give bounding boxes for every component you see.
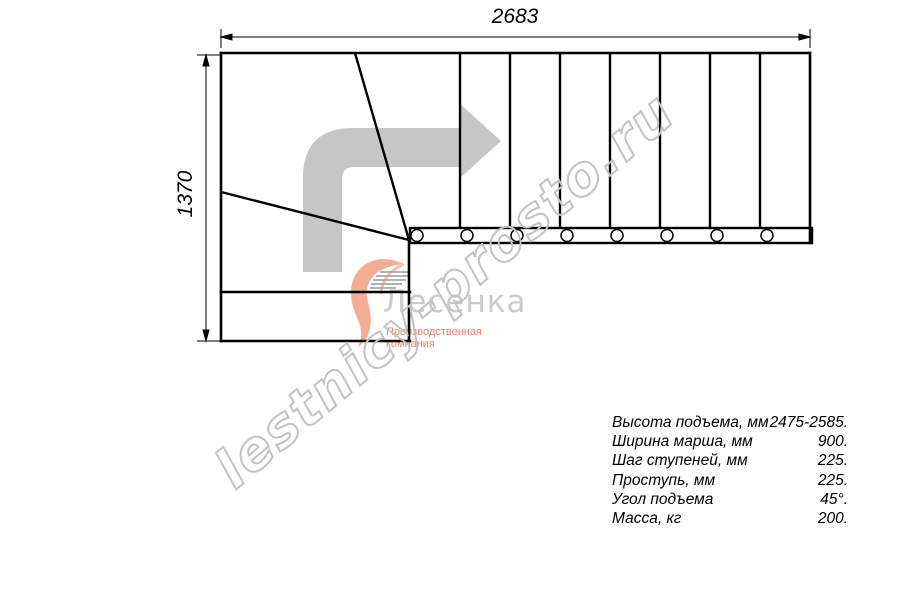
spec-label: Шаг ступеней, мм — [612, 451, 748, 470]
spec-row: Угол подъема 45°. — [612, 490, 848, 509]
spec-value: 2475-2585. — [770, 413, 848, 432]
spec-label: Масса, кг — [612, 509, 681, 528]
spec-value: 225. — [818, 471, 848, 490]
spec-row: Высота подъема, мм 2475-2585. — [612, 413, 848, 432]
height-dimension — [197, 55, 221, 341]
width-dimension-label: 2683 — [465, 5, 565, 29]
spec-value: 900. — [818, 432, 848, 451]
spec-value: 200. — [818, 509, 848, 528]
spec-value: 225. — [818, 451, 848, 470]
spec-table: Высота подъема, мм 2475-2585. Ширина мар… — [612, 413, 848, 528]
spec-value: 45°. — [820, 490, 848, 509]
spec-row: Масса, кг 200. — [612, 509, 848, 528]
spec-row: Шаг ступеней, мм 225. — [612, 451, 848, 470]
spec-label: Ширина марша, мм — [612, 432, 753, 451]
spec-label: Высота подъема, мм — [612, 413, 769, 432]
spec-label: Угол подъема — [612, 490, 713, 509]
staircase-drawing-page: Лесенка Производственная компания — [0, 0, 900, 600]
width-dimension — [221, 29, 810, 48]
height-dimension-label: 1370 — [174, 144, 198, 244]
spec-row: Ширина марша, мм 900. — [612, 432, 848, 451]
spec-label: Проступь, мм — [612, 471, 715, 490]
spec-row: Проступь, мм 225. — [612, 471, 848, 490]
